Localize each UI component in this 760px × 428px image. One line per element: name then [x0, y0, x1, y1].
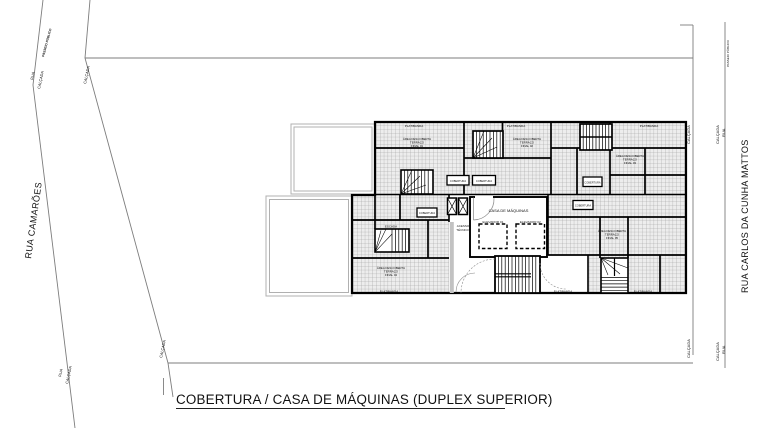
rua-label-west-bottom: RUA — [58, 368, 64, 377]
parapet-label-3: PLATIBANDA — [640, 124, 658, 128]
unit-4-line-3: FINAL 04 — [385, 273, 397, 277]
terrace-upper-left — [291, 124, 375, 194]
calcada-label-east-bottom: CALÇADA — [686, 339, 691, 358]
passeio-publico-label-east: PASSEIO PÚBLICO — [725, 39, 730, 67]
rua-label-east-bottom: RUA — [721, 345, 726, 354]
unit-2-line-3: FINAL 02 — [521, 144, 533, 148]
passeio-publico-label-west: PASSEIO PÚBLICO — [40, 27, 53, 57]
label-box-4-text: COBERTURA — [575, 204, 592, 208]
gray-service-wall — [450, 222, 454, 293]
skylight-symbols — [448, 198, 468, 215]
elevator-1-label: ELEVADOR 01 — [483, 220, 504, 224]
calcada-label-west-bottom: CALÇADA — [65, 365, 73, 384]
label-box-1-text: COBERTURA — [450, 179, 467, 183]
label-box-2-text: COBERTURA — [476, 179, 493, 183]
door-arc-stair-right — [540, 263, 566, 289]
unit-5-line-3: FINAL 05 — [606, 236, 618, 240]
parapet-label-1: PLATIBANDA — [405, 124, 423, 128]
stair-lower-left-winder — [375, 229, 409, 252]
machine-room-outline — [470, 197, 547, 257]
calcada-label-west-top: CALÇADA — [37, 70, 45, 89]
stair-upper-left — [401, 170, 433, 194]
stair-upper-right — [580, 124, 612, 150]
elevator-2-label: ELEVADOR 02 — [520, 220, 541, 224]
terrace-upper-left-inner — [294, 127, 372, 191]
rua-label-east-top: RUA — [721, 128, 726, 137]
label-box-5-text: COBERTURA — [419, 211, 436, 215]
street-label-right: RUA CARLOS DA CUNHA MATTOS — [740, 140, 750, 294]
street-label-left: RUA CAMARÕES — [23, 181, 44, 259]
stair-upper-center — [473, 131, 503, 158]
terrace-lower-left-inner — [270, 200, 349, 293]
calcada-label-east-outer-bottom: CALÇADA — [715, 342, 720, 361]
label-box-3-text: COBERTURA — [584, 181, 601, 185]
street-line-west-inner — [85, 0, 173, 397]
floor-plan-sheet: RUA CAMARÕES RUA CARLOS DA CUNHA MATTOS … — [0, 0, 760, 428]
parapet-label-6: PLATIBANDA — [634, 289, 652, 293]
unit-3-line-3: FINAL 03 — [624, 161, 636, 165]
stair-lower-right-winder — [601, 258, 628, 293]
stair-label: ESCADA — [385, 224, 397, 228]
rua-label-west-top: RUA — [30, 71, 36, 80]
calcada-label-east-outer-top: CALÇADA — [715, 125, 720, 144]
sheet-title-block: COBERTURA / CASA DE MÁQUINAS (DUPLEX SUP… — [176, 392, 553, 409]
site-plan-drawing: RUA CAMARÕES RUA CARLOS DA CUNHA MATTOS … — [0, 0, 760, 428]
tech-access-label-2: TÉCNICO — [456, 227, 470, 232]
door-arc-stair-left — [461, 259, 495, 293]
stair-central — [495, 256, 540, 293]
sheet-title: COBERTURA / CASA DE MÁQUINAS (DUPLEX SUP… — [176, 392, 553, 407]
machine-room — [470, 197, 547, 257]
machine-room-label: CASA DE MÁQUINAS — [489, 208, 529, 213]
terrace-lower-left — [266, 196, 352, 296]
parapet-label-2: PLATIBANDA — [507, 124, 525, 128]
parapet-label-4: PLATIBANDA — [380, 289, 398, 293]
parapet-label-5: PLATIBANDA — [554, 289, 572, 293]
unit-1-line-3: FINAL 01 — [411, 144, 423, 148]
